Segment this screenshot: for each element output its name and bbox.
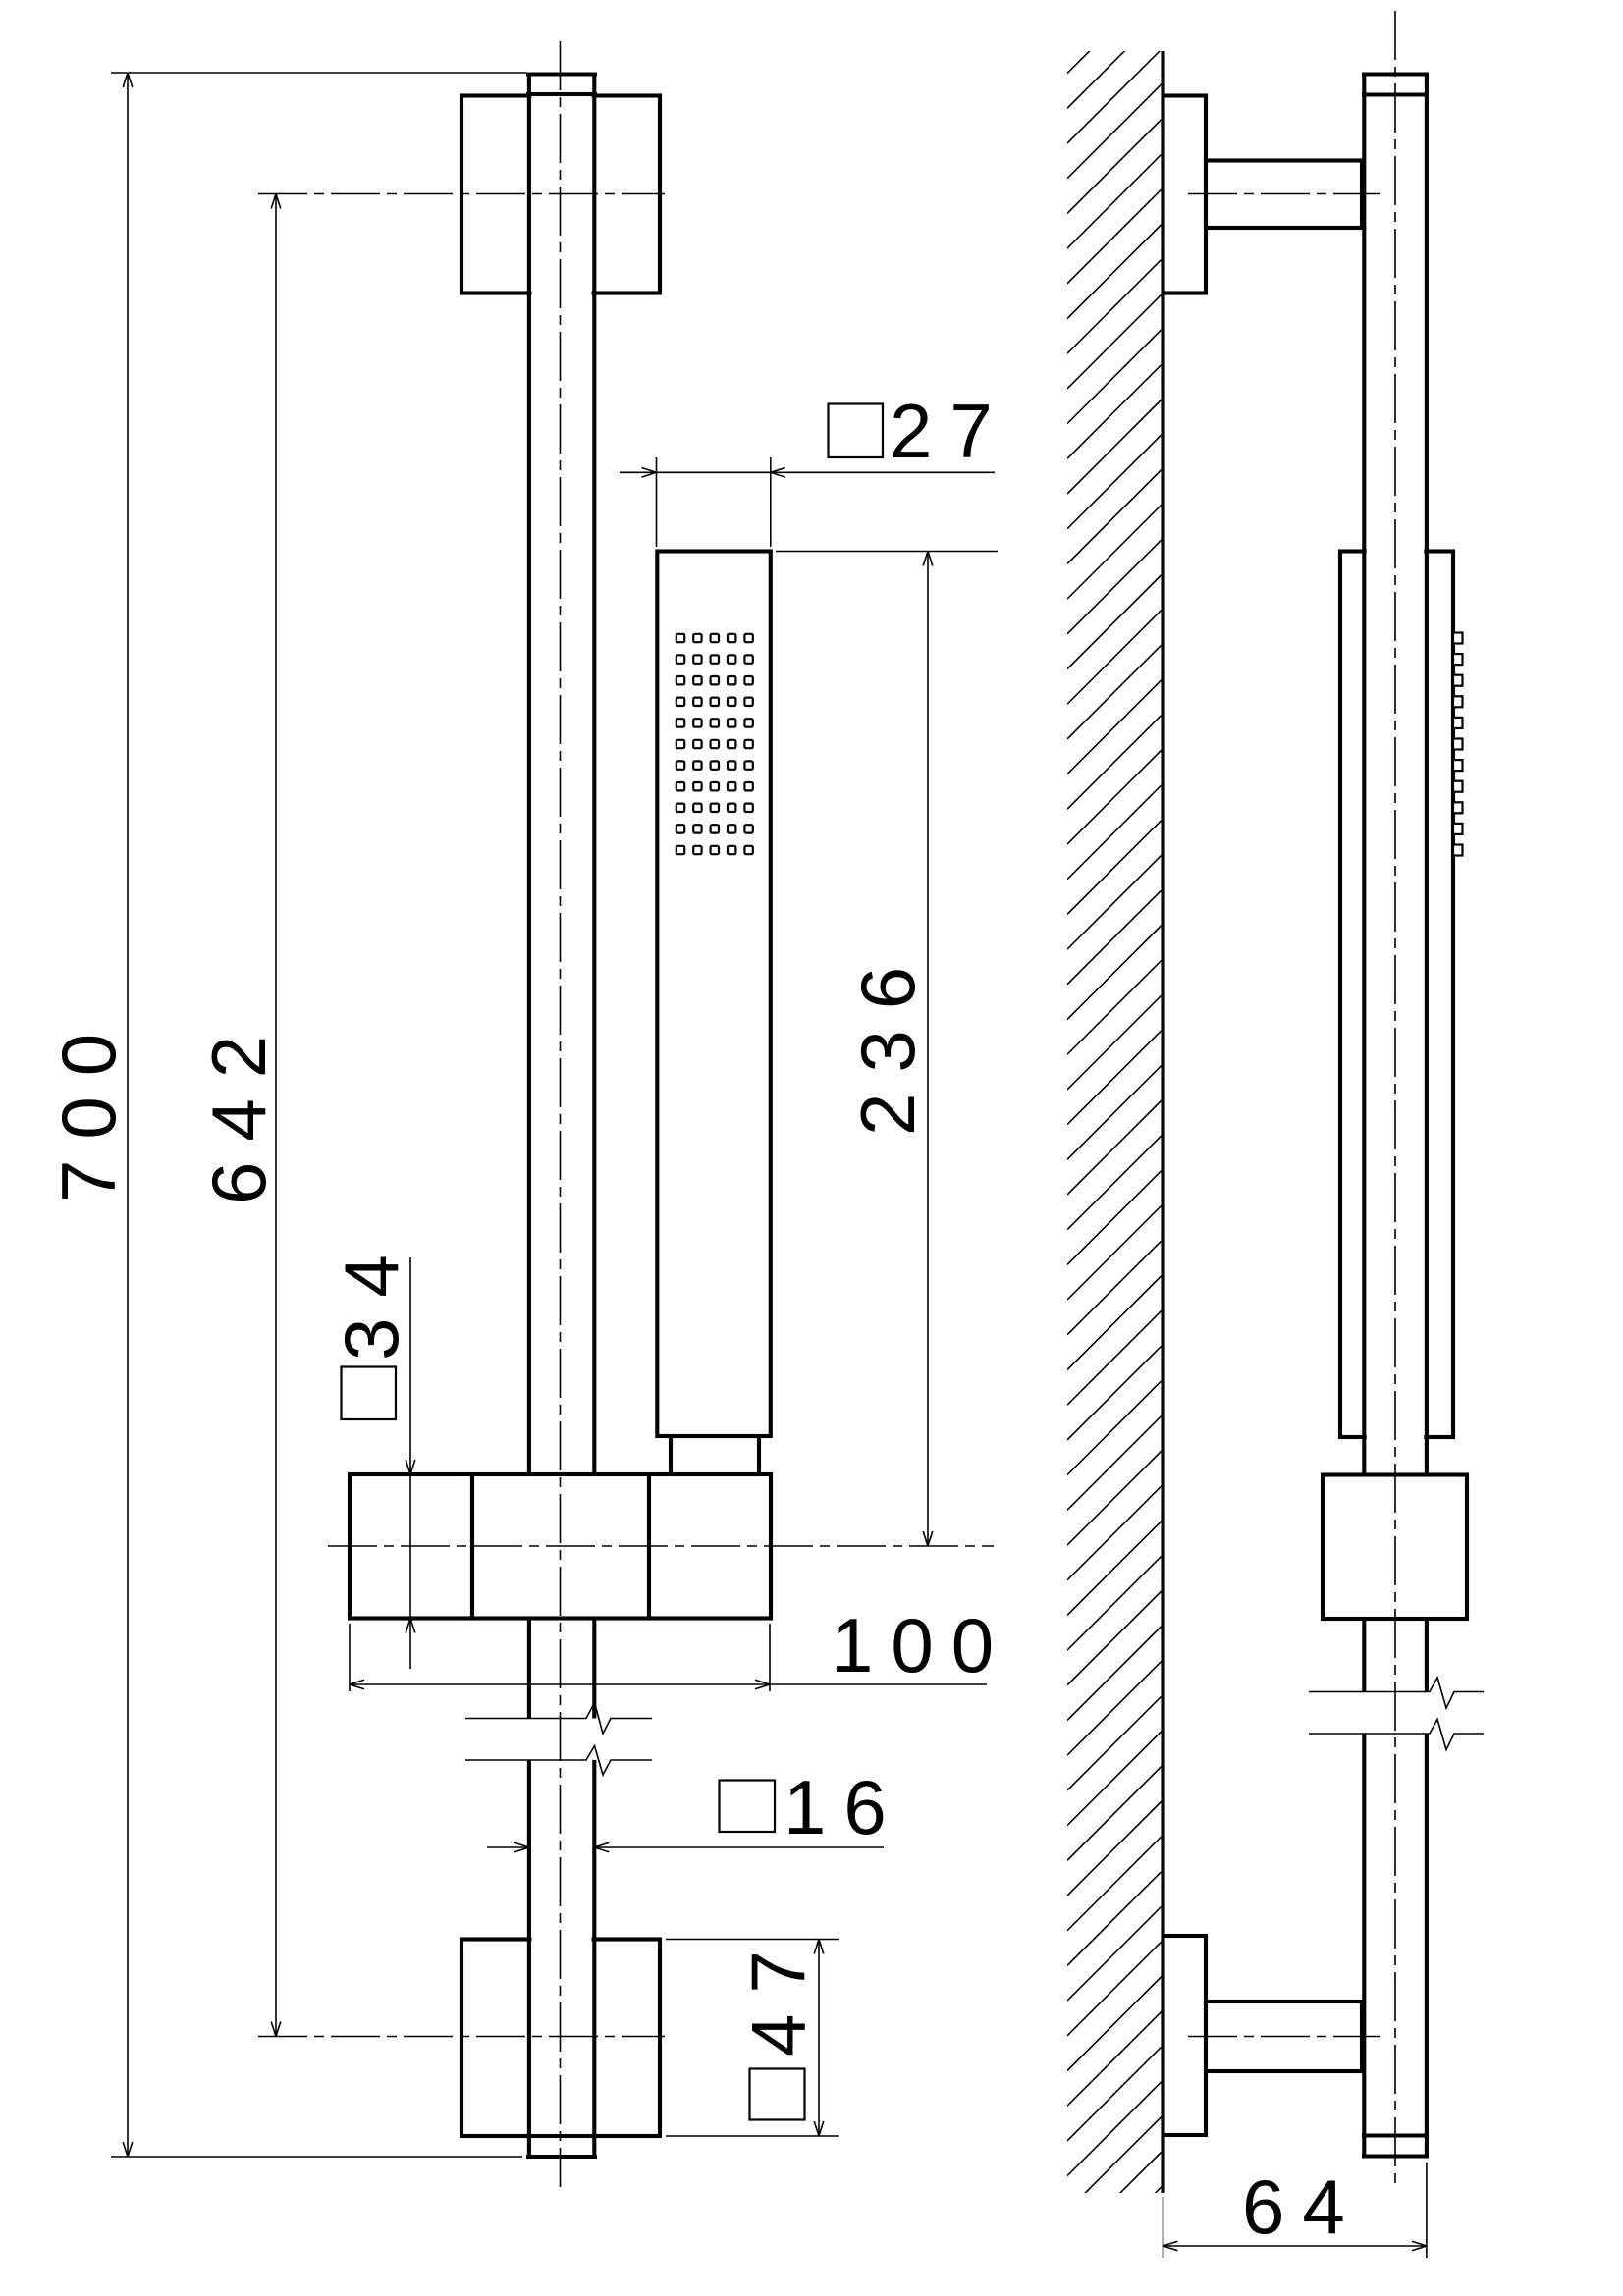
svg-text:64: 64 [1242,2163,1363,2250]
svg-text:27: 27 [890,388,1010,474]
svg-text:100: 100 [831,1602,1011,1688]
svg-text:16: 16 [784,1764,904,1850]
svg-text:642: 642 [195,1015,282,1204]
svg-text:34: 34 [328,1234,414,1361]
svg-text:700: 700 [45,1013,132,1202]
svg-text:47: 47 [735,1930,822,2056]
svg-text:236: 236 [844,946,931,1136]
